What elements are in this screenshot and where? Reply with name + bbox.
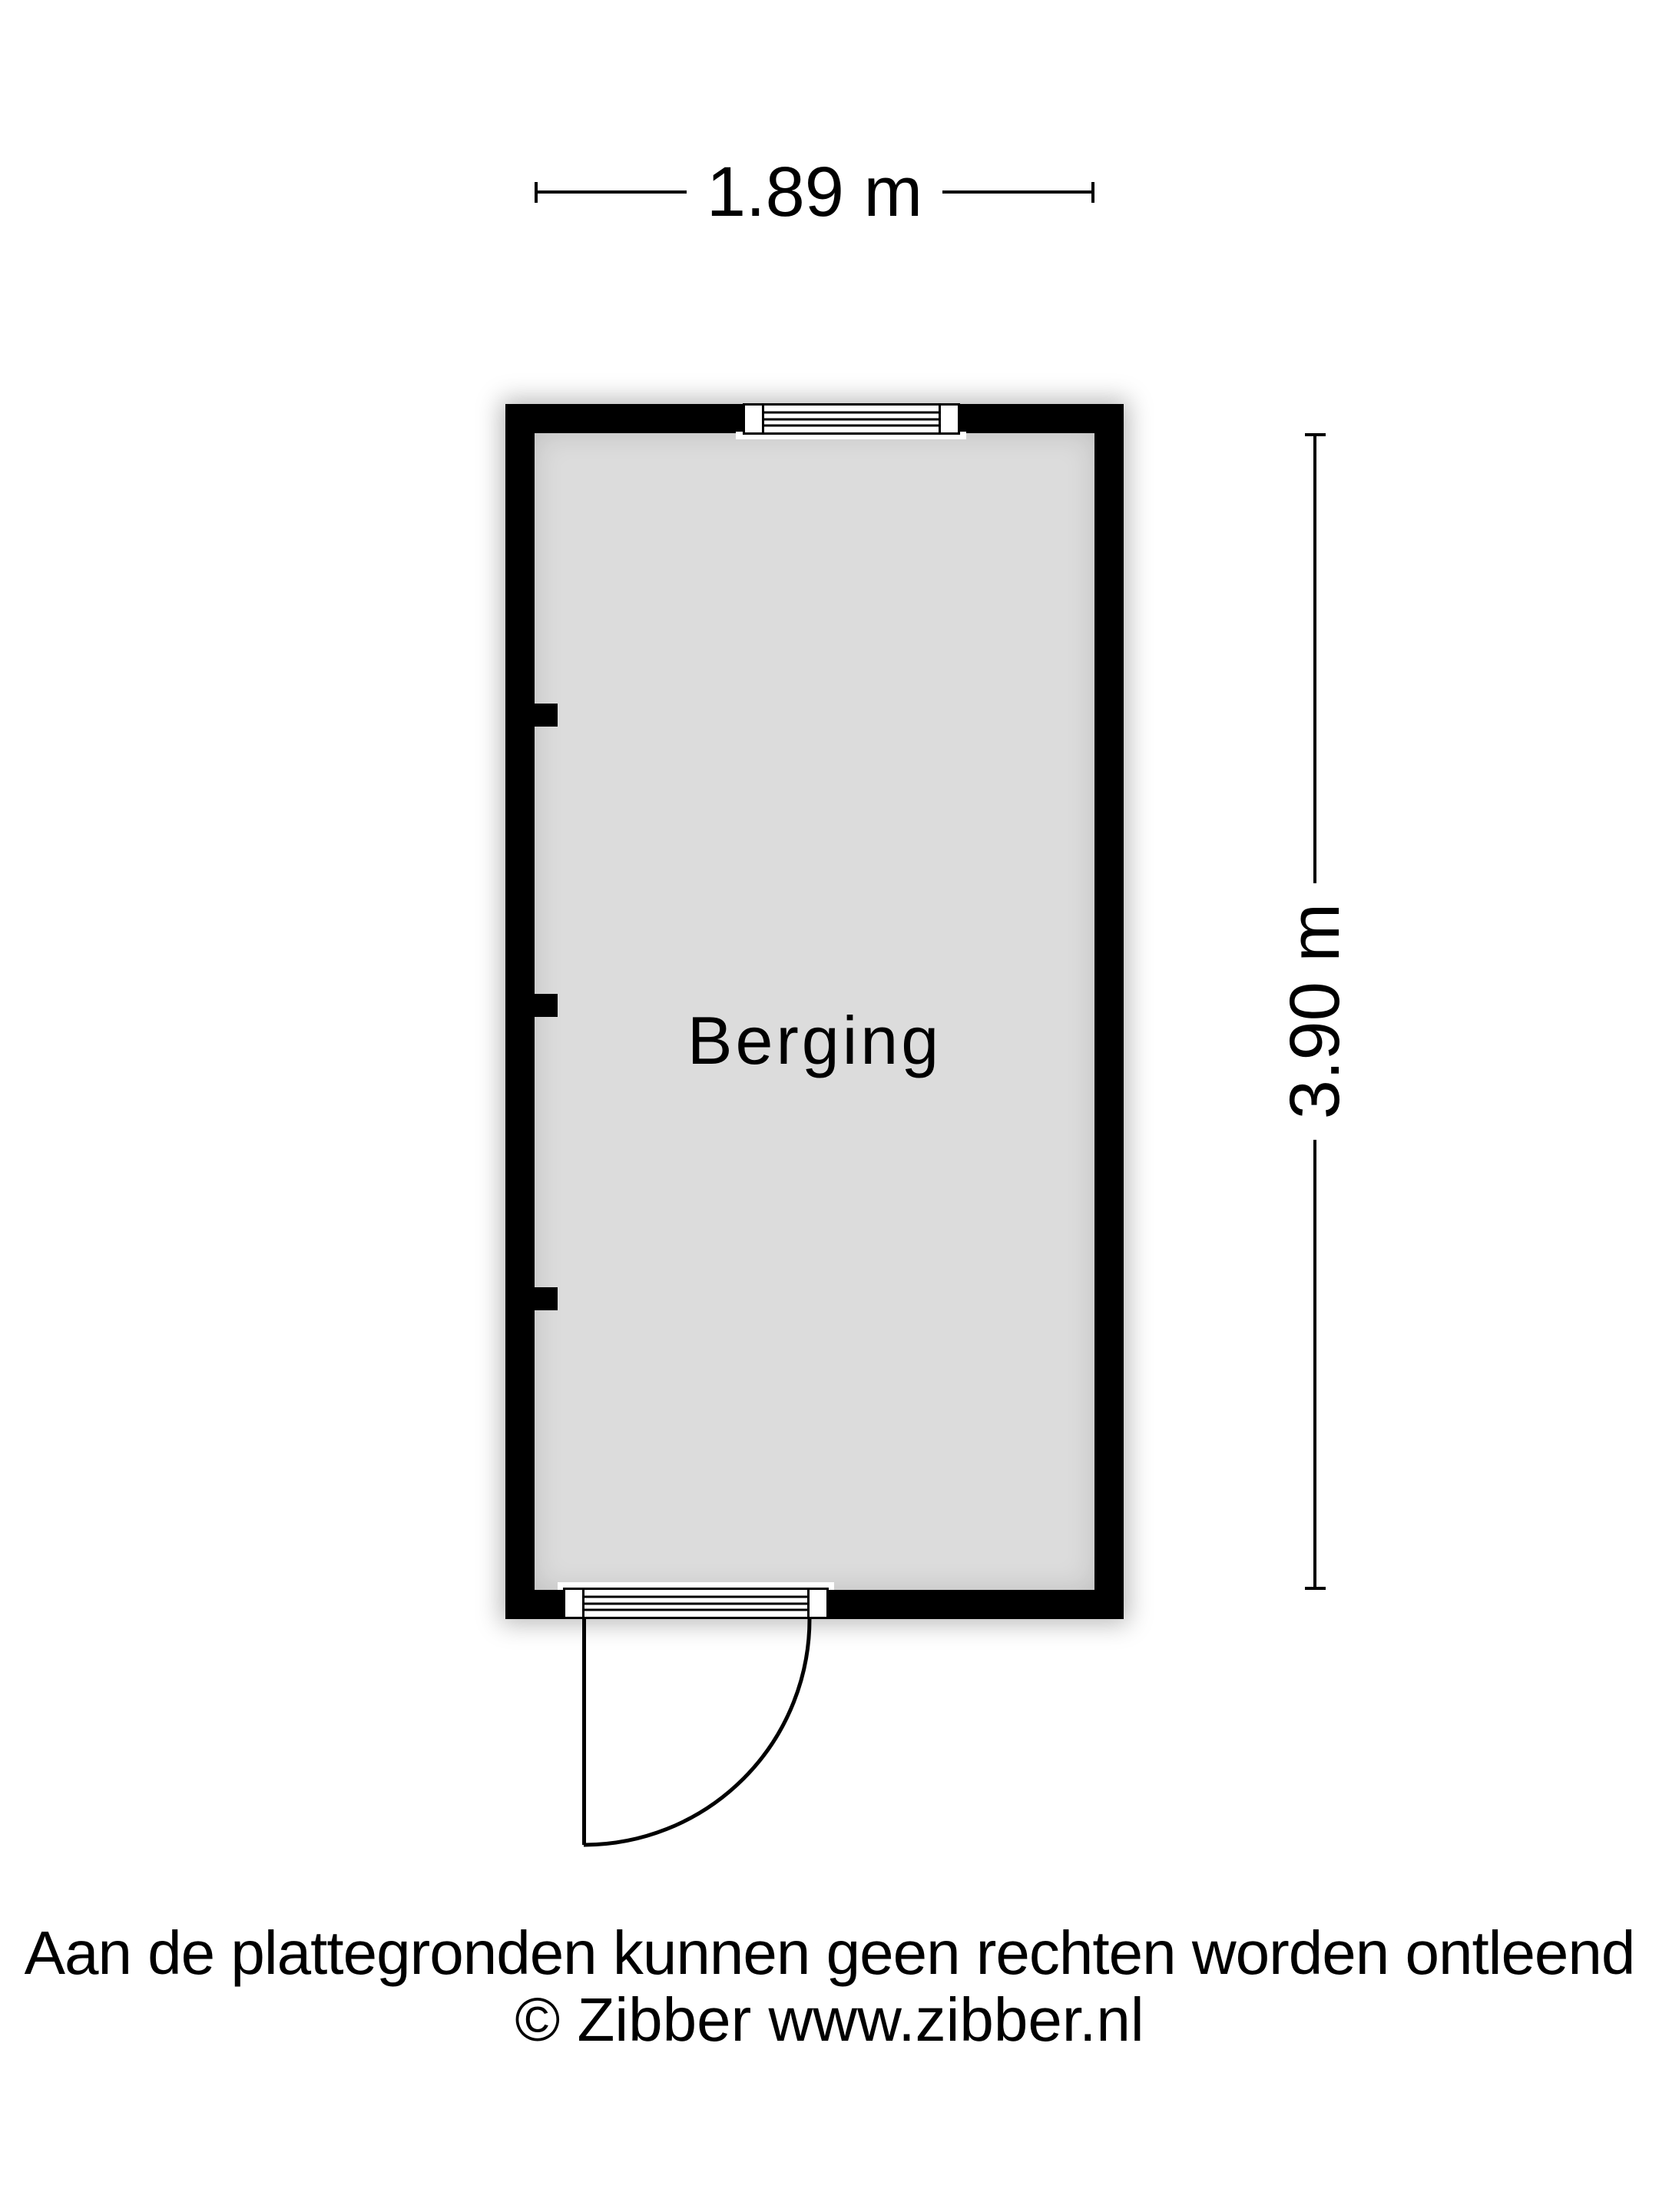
glazed-door-icon <box>563 1588 829 1619</box>
height-dimension-label: 3.90 m <box>1280 883 1350 1139</box>
dimension-tick-right <box>1091 182 1094 203</box>
door-pane-line <box>584 1602 807 1604</box>
width-dimension: 1.89 m <box>535 157 1094 227</box>
door-pane-line <box>584 1595 807 1598</box>
window-pane-line <box>764 411 939 413</box>
floor-plan-page: 1.89 m 3.90 m <box>0 0 1659 2212</box>
door-swing-arc <box>581 1617 813 1849</box>
window-pane-line <box>764 418 939 420</box>
dimension-tick-bottom <box>1305 1587 1326 1590</box>
door-arc <box>584 1619 810 1845</box>
dimension-line-left <box>538 190 687 194</box>
window-pane-line <box>764 425 939 427</box>
wall-post <box>535 704 558 727</box>
dimension-line-top <box>1313 436 1316 883</box>
room-label: Berging <box>535 1007 1094 1075</box>
width-dimension-label: 1.89 m <box>687 157 942 227</box>
window-glazing <box>762 406 941 432</box>
window-icon <box>743 403 960 435</box>
wall-post <box>535 1287 558 1310</box>
dimension-line-right <box>942 190 1091 194</box>
door-pane-line <box>584 1609 807 1611</box>
door-glazing <box>582 1590 810 1617</box>
dimension-line-bottom <box>1313 1140 1316 1587</box>
copyright-text: © Zibber www.zibber.nl <box>0 1989 1659 2051</box>
height-dimension: 3.90 m <box>1292 433 1338 1590</box>
disclaimer-text: Aan de plattegronden kunnen geen rechten… <box>0 1922 1659 1984</box>
